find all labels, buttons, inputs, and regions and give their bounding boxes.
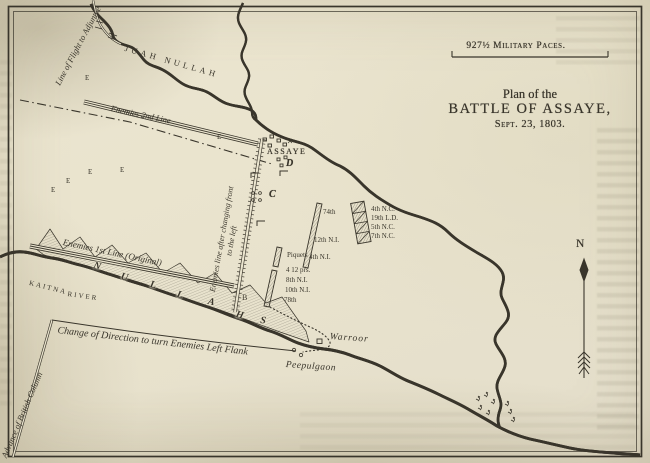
map-title-line3: Sept. 23, 1803. (430, 120, 630, 131)
unit-label-12th-ni: 12th N.I. (314, 237, 339, 244)
north-stream (238, 3, 256, 120)
unit-label-10th-ni: 10th N.I. (285, 287, 310, 294)
reference-letter-c: C (269, 190, 276, 200)
unit-label-guns: 4 12 prs. (286, 267, 310, 274)
e-marker: E (51, 187, 55, 194)
compass-north-label: N (576, 239, 584, 251)
kaitna-river (0, 252, 640, 455)
unit-label-74th: 74th (323, 209, 335, 216)
reference-letter-b: B (242, 294, 247, 302)
warroor-village-mark (317, 339, 322, 344)
battle-map-page: 927½ Military Paces. Plan of the BATTLE … (0, 0, 650, 463)
british-cavalry-block (351, 201, 371, 244)
nullahs-letter: S (260, 316, 267, 327)
unit-label-cavalry-2: 19th L.D. (371, 215, 398, 222)
assaye-village-label: ASSAYE (267, 148, 306, 156)
map-title-line1: Plan of the (430, 88, 630, 101)
e-marker: E (88, 169, 92, 176)
scale-bar-label: 927½ Military Paces. (441, 42, 591, 52)
unit-label-cavalry-1: 4th N.C. (371, 206, 395, 213)
unit-label-cavalry-3: 5th N.C. (371, 224, 395, 231)
unit-label-78th: 78th (284, 297, 296, 304)
unit-label-piquets: Piquets (287, 252, 308, 259)
map-linework (0, 0, 650, 463)
map-title-line2: BATTLE OF ASSAYE, (415, 102, 645, 117)
reference-letter-d: D (286, 159, 293, 169)
compass-arrow (578, 259, 590, 378)
e-marker: E (120, 167, 124, 174)
scale-bar-line (452, 51, 608, 57)
unit-label-4th-ni: 4th N.I. (309, 254, 331, 261)
e-marker: E (66, 178, 70, 185)
map-frame-border (9, 7, 642, 457)
unit-label-cavalry-4: 7th N.C. (371, 233, 395, 240)
unit-label-8th-ni: 8th N.I. (286, 277, 308, 284)
e-marker: E (85, 75, 89, 82)
e-marker: E (217, 134, 221, 141)
